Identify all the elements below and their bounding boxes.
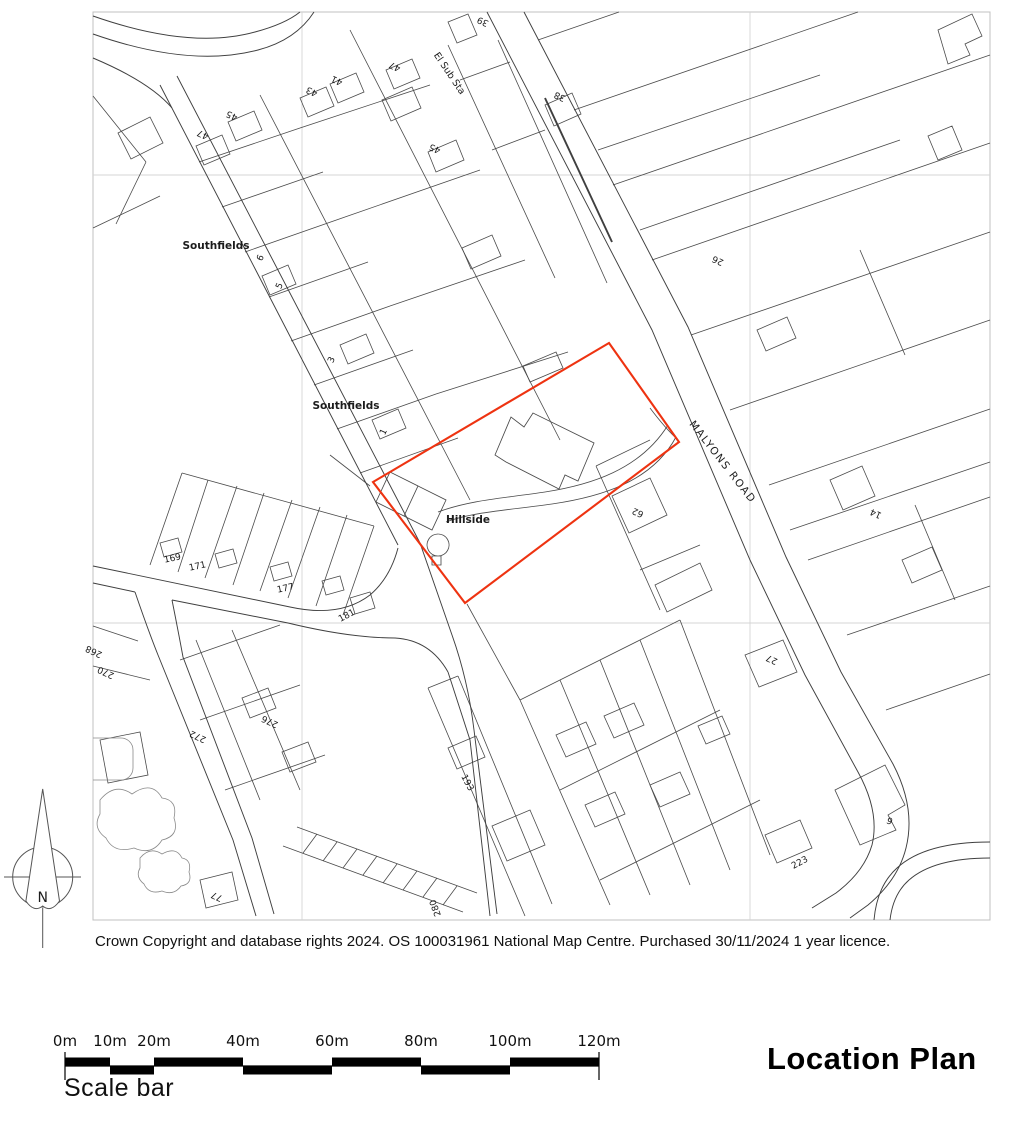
map-label-41: 41: [330, 73, 345, 87]
site-house: [495, 413, 594, 489]
map-label-hillside: Hillside: [446, 514, 490, 526]
map-label-223: 223: [790, 855, 810, 872]
map-label-193: 193: [458, 773, 475, 793]
map-label-southfields: Southfields: [182, 240, 249, 252]
map-label-272: 272: [188, 728, 208, 744]
road-bottom-right: [874, 842, 990, 920]
scale-tick-label-100m: 100m: [488, 1032, 531, 1050]
scale-bar-caption: Scale bar: [64, 1074, 174, 1103]
map-label-26: 26: [711, 253, 726, 267]
scale-tick-label-10m: 10m: [93, 1032, 127, 1050]
plan-title: Location Plan: [767, 1041, 977, 1077]
scale-bar-segments: [65, 1058, 599, 1075]
north-label: N: [37, 890, 47, 906]
map-label-47: 47: [388, 59, 403, 73]
page: { "title": "Location Plan", "copyright":…: [0, 0, 1024, 1129]
map-label-3: 3: [326, 355, 337, 364]
scale-tick-label-20m: 20m: [137, 1032, 171, 1050]
scale-tick-label-40m: 40m: [226, 1032, 260, 1050]
north-arrow-icon: N: [4, 789, 81, 948]
site-pond: [427, 534, 449, 565]
road-curve-top-left: [93, 12, 300, 38]
map-label-27: 27: [765, 652, 780, 666]
map-label-62: 62: [631, 505, 646, 519]
map-label-6: 6: [885, 814, 895, 826]
map-label-280: 280: [428, 898, 443, 918]
road-south-branch: [135, 592, 256, 916]
map-label-171: 171: [188, 560, 207, 573]
map-label-169: 169: [163, 552, 182, 565]
map-label-268: 268: [84, 643, 104, 659]
map-label-276: 276: [260, 713, 280, 729]
map-label-el-sub-sta: El Sub Sta: [431, 50, 467, 96]
map-label-77: 77: [210, 889, 225, 903]
road-southfields: [160, 85, 398, 545]
scale-tick-label-0m: 0m: [53, 1032, 77, 1050]
map-label-45: 45: [225, 108, 240, 122]
map-labels: El Sub Sta393826474543414745Southfields6…: [84, 14, 895, 918]
map-label-177: 177: [276, 582, 295, 595]
map-label-39: 39: [476, 14, 491, 28]
site-detail: [376, 352, 676, 565]
map-label-270: 270: [96, 664, 116, 680]
parcel-lines: [93, 12, 990, 916]
map-label-southfields: Southfields: [312, 400, 379, 412]
vegetation-outlines: [93, 738, 190, 893]
map-label-6: 6: [255, 253, 267, 263]
map-label-14: 14: [869, 506, 884, 520]
site-driveway: [438, 425, 668, 512]
map-label-45: 45: [428, 141, 443, 155]
site-outbuilding: [523, 352, 563, 382]
map-label-43: 43: [305, 84, 320, 98]
scale-tick-label-120m: 120m: [577, 1032, 620, 1050]
map-label-47: 47: [196, 127, 211, 141]
road-lower-west: [93, 548, 398, 611]
copyright-text: Crown Copyright and database rights 2024…: [95, 933, 890, 950]
scale-tick-label-60m: 60m: [315, 1032, 349, 1050]
scale-tick-label-80m: 80m: [404, 1032, 438, 1050]
plan-drawing: El Sub Sta393826474543414745Southfields6…: [0, 0, 1024, 1129]
map-label-malyons-road: MALYONS ROAD: [686, 419, 758, 506]
location-plan-document: El Sub Sta393826474543414745Southfields6…: [0, 0, 1024, 1129]
site-boundary: [373, 343, 679, 603]
